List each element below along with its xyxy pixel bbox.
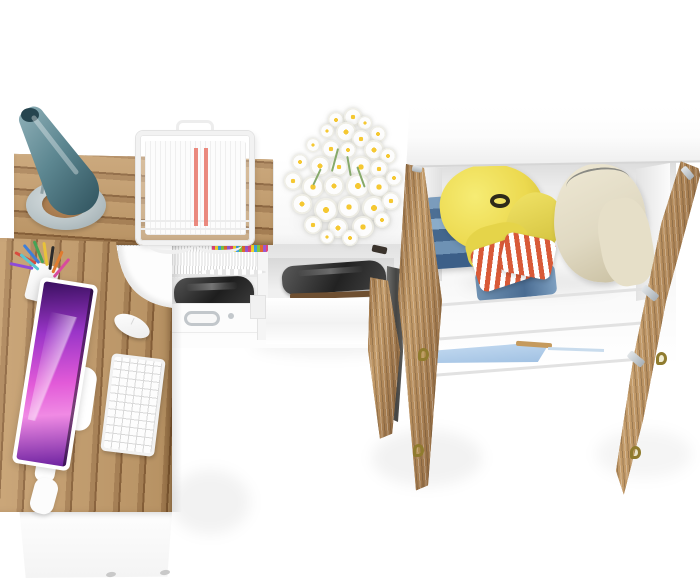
drawer-knob — [228, 313, 234, 319]
daisy-flower — [284, 172, 302, 190]
daisy-flower — [358, 116, 372, 130]
paper-red-stripe — [194, 148, 198, 226]
daisy-flower — [338, 196, 360, 218]
daisy-flower — [374, 212, 390, 228]
desk-foot — [160, 569, 171, 575]
floor-shadow — [170, 470, 250, 534]
brass-door-pull — [630, 446, 641, 459]
desk-side-shadow — [172, 246, 182, 512]
daisy-flower — [346, 174, 370, 198]
brass-door-pull — [413, 444, 424, 457]
document-tray — [136, 120, 256, 258]
brass-door-pull — [656, 352, 667, 365]
daisy-flower — [292, 154, 308, 170]
daisy-flower — [324, 176, 344, 196]
daisy-flower — [386, 170, 402, 186]
keyboard-keys — [104, 356, 163, 453]
drawer-chrome-handle — [184, 311, 220, 326]
daisy-flower — [310, 156, 330, 176]
tray-leg — [148, 236, 194, 254]
daisy-flower — [292, 194, 312, 214]
floor-shadow — [596, 430, 692, 478]
daisy-flower — [382, 192, 400, 210]
daisy-flower — [304, 216, 322, 234]
wardrobe-top-panel — [404, 0, 700, 171]
desk-front-panel — [18, 512, 172, 578]
daisy-flower — [320, 230, 334, 244]
daisy-flower — [320, 124, 334, 138]
desk-lamp — [4, 102, 116, 224]
jacket-belt-buckle — [490, 194, 510, 208]
tray-leg — [196, 236, 242, 254]
notebook-edges — [198, 269, 266, 275]
paper-stack — [250, 295, 266, 319]
tray-wire-bar — [140, 228, 250, 230]
daisy-bouquet — [276, 104, 406, 246]
furniture-render — [0, 0, 700, 581]
daisy-flower — [306, 138, 320, 152]
daisy-flower — [342, 230, 358, 246]
paper-red-stripe — [204, 148, 208, 226]
brass-door-pull — [418, 348, 429, 361]
